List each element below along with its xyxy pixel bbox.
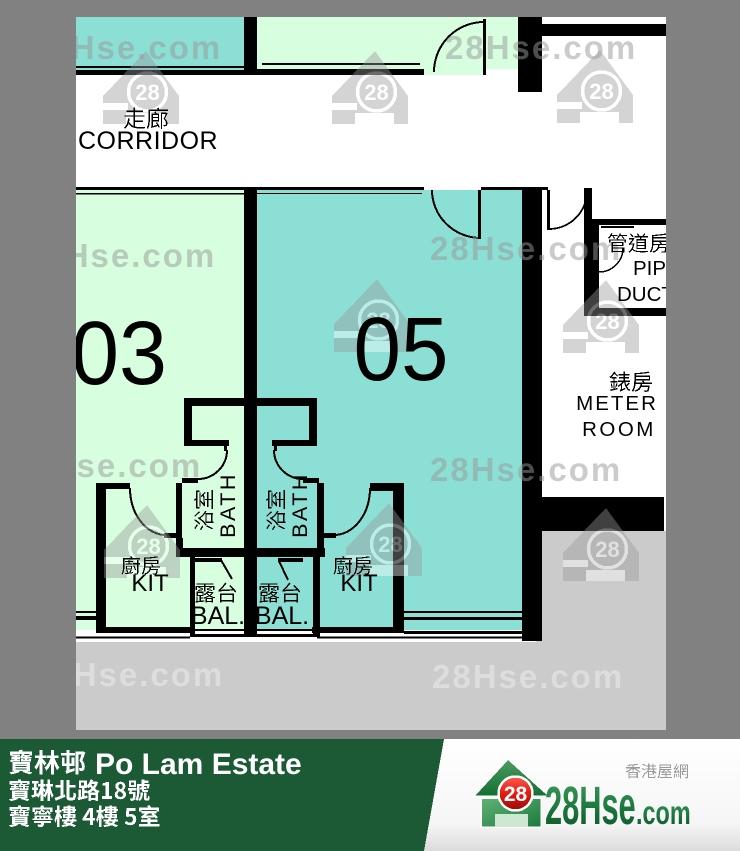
svg-text:KIT: KIT (131, 570, 169, 597)
svg-text:28Hse.com: 28Hse.com (430, 230, 622, 267)
svg-text:28Hse.com: 28Hse.com (445, 29, 637, 66)
svg-text:.com: .com (636, 795, 691, 832)
svg-text:28Hse: 28Hse (545, 776, 636, 836)
svg-text:05: 05 (354, 300, 449, 400)
svg-text:CORRIDOR: CORRIDOR (78, 127, 218, 155)
svg-text:03: 03 (71, 304, 167, 404)
svg-text:BAL.: BAL. (191, 602, 245, 630)
svg-text:28: 28 (504, 783, 528, 806)
svg-text:DUCT: DUCT (617, 283, 674, 306)
svg-text:BATH: BATH (216, 472, 240, 538)
svg-text:ROOM: ROOM (582, 418, 656, 441)
svg-text:28Hse.com: 28Hse.com (430, 451, 622, 488)
svg-text:BAL.: BAL. (255, 602, 309, 630)
svg-text:Po Lam Estate: Po Lam Estate (95, 748, 302, 781)
svg-text:BATH: BATH (288, 472, 312, 538)
svg-text:KIT: KIT (340, 570, 378, 597)
svg-text:28Hse.com: 28Hse.com (432, 658, 624, 695)
svg-text:METER: METER (576, 392, 658, 415)
